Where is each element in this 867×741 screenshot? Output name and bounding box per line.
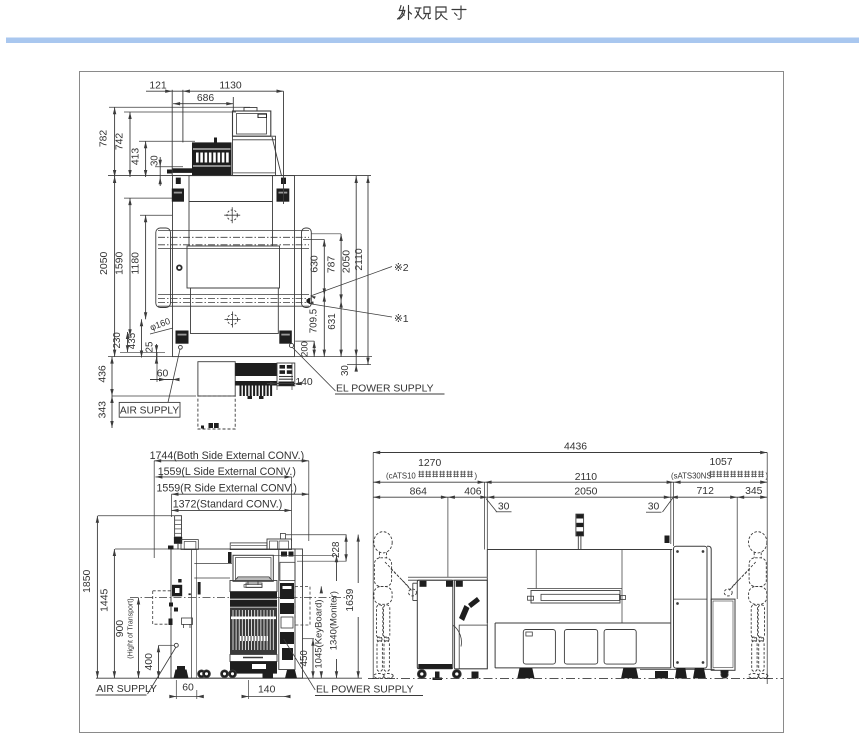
svg-text:1639: 1639 [345,588,356,611]
svg-text:413: 413 [131,148,142,166]
svg-text:709.5: 709.5 [309,308,320,333]
svg-text:436: 436 [97,365,108,383]
svg-text:4436: 4436 [564,442,587,453]
svg-text:2050: 2050 [99,252,110,275]
svg-text:EL POWER SUPPLY: EL POWER SUPPLY [316,685,414,696]
svg-text:AIR SUPPLY: AIR SUPPLY [120,405,179,416]
svg-text:1850: 1850 [82,570,93,593]
svg-text:1130: 1130 [219,81,242,92]
svg-text:): ) [766,471,769,480]
svg-text:140: 140 [258,685,276,696]
svg-text:30: 30 [150,155,161,166]
svg-text:121: 121 [149,81,167,92]
svg-text:2050: 2050 [341,250,352,273]
svg-text:631: 631 [327,313,338,329]
svg-text:(sATS30NS: (sATS30NS [671,471,712,480]
svg-text:2110: 2110 [575,472,598,483]
svg-text:782: 782 [99,130,110,148]
svg-text:30: 30 [498,501,510,512]
svg-text:2050: 2050 [574,487,597,498]
svg-text:742: 742 [115,133,126,151]
svg-text:712: 712 [697,486,715,497]
svg-text:630: 630 [309,255,320,273]
svg-text:2110: 2110 [354,248,365,271]
svg-text:1340(Moniter): 1340(Moniter) [329,591,340,650]
svg-text:1559(L Side External CONV.): 1559(L Side External CONV.) [158,466,296,478]
svg-text:1445: 1445 [100,589,111,612]
svg-text:1559(R Side External CONV.): 1559(R Side External CONV.) [157,483,297,495]
svg-text:EL POWER SUPPLY: EL POWER SUPPLY [336,384,434,395]
svg-text:1744(Both Side External CONV.): 1744(Both Side External CONV.) [150,450,305,462]
svg-text:406: 406 [464,487,482,498]
svg-text:1372(Standard CONV.): 1372(Standard CONV.) [173,499,283,511]
svg-text:230: 230 [112,332,123,349]
svg-text:1180: 1180 [131,252,142,275]
svg-text:450: 450 [299,650,310,667]
svg-text:1057: 1057 [709,457,732,468]
svg-text:864: 864 [410,487,428,498]
svg-text:400: 400 [144,653,155,671]
svg-text:(Hight of Transport): (Hight of Transport) [128,598,135,658]
svg-text:※2: ※2 [394,262,409,274]
svg-text:): ) [475,471,478,480]
svg-text:60: 60 [182,683,194,694]
svg-text:30: 30 [340,365,351,376]
svg-text:345: 345 [745,486,763,497]
svg-text:(cATS10: (cATS10 [386,471,416,480]
svg-text:140: 140 [295,377,313,388]
svg-text:1590: 1590 [115,252,126,275]
svg-text:435: 435 [127,332,138,349]
svg-text:※1: ※1 [394,313,409,325]
svg-text:343: 343 [97,401,108,419]
svg-text:787: 787 [327,256,338,274]
svg-text:1045(KeyBoard): 1045(KeyBoard) [313,599,324,668]
svg-text:AIR SUPPLY: AIR SUPPLY [97,684,158,695]
svg-text:200: 200 [299,341,310,357]
svg-text:1270: 1270 [418,458,441,469]
svg-text:60: 60 [157,369,169,380]
svg-text:900: 900 [115,620,126,638]
svg-text:30: 30 [648,502,660,513]
svg-text:25: 25 [145,341,156,352]
svg-text:686: 686 [197,93,215,104]
